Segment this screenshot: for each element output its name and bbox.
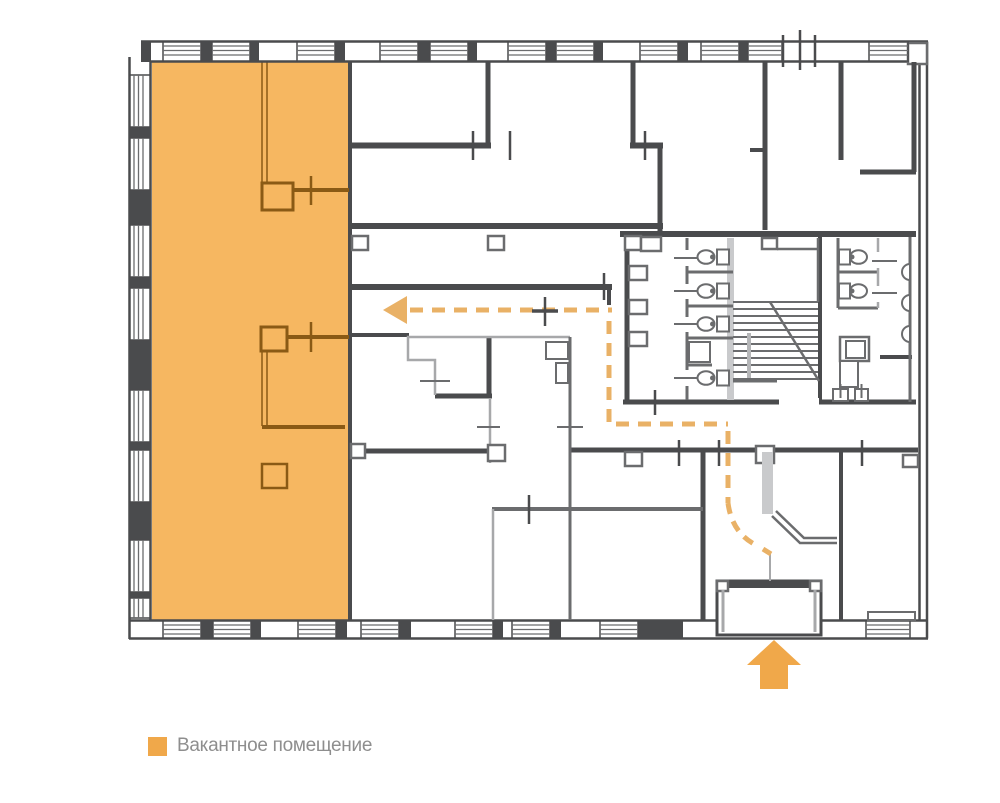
toilet-icon [698, 317, 730, 332]
toilet-icon [698, 371, 730, 386]
landing-notch [762, 238, 777, 249]
entrance-arrow [747, 640, 801, 689]
corner-block [908, 43, 927, 64]
shower-unit [840, 337, 869, 387]
legend-swatch [148, 737, 167, 756]
wall-piers-top [141, 41, 748, 62]
staircase [733, 238, 819, 381]
route-segment [728, 503, 756, 545]
stall-door-ticks [872, 261, 897, 293]
entrance-vestibule [717, 553, 821, 635]
window-sill [868, 612, 915, 620]
route-door-symbol [532, 297, 558, 326]
sink-icons [902, 264, 910, 342]
wall-piers-left [129, 127, 151, 598]
stair-treads [733, 302, 818, 379]
toilet-stalls-right [833, 238, 910, 401]
toilet-icon [839, 250, 867, 265]
vacant-area [152, 62, 350, 620]
toilet-icon [698, 250, 730, 265]
legend: Вакантное помещение [148, 735, 372, 757]
entrance-porch [717, 452, 837, 689]
stair-break-line [770, 302, 819, 381]
floor-plan [0, 0, 1000, 803]
windows-top [163, 41, 908, 62]
shaft-box [556, 363, 568, 383]
vacant-area-fill [152, 62, 350, 620]
route-arrowhead [383, 296, 407, 324]
porch-wall [762, 452, 773, 514]
top-entry-door [783, 30, 815, 70]
shaft-box [546, 342, 568, 359]
entry-ramp [772, 511, 837, 543]
sink-icon [689, 342, 710, 362]
toilet-icon [698, 284, 730, 299]
corridor-route [383, 296, 771, 554]
route-end-dot [763, 549, 771, 554]
sanitary-core [629, 237, 910, 401]
toilet-stalls-left [674, 238, 734, 400]
toilet-icon [839, 284, 867, 299]
floor-plan-canvas: Вакантное помещение [0, 0, 1000, 803]
stair-exit-opening [779, 398, 819, 407]
legend-label: Вакантное помещение [177, 735, 372, 757]
